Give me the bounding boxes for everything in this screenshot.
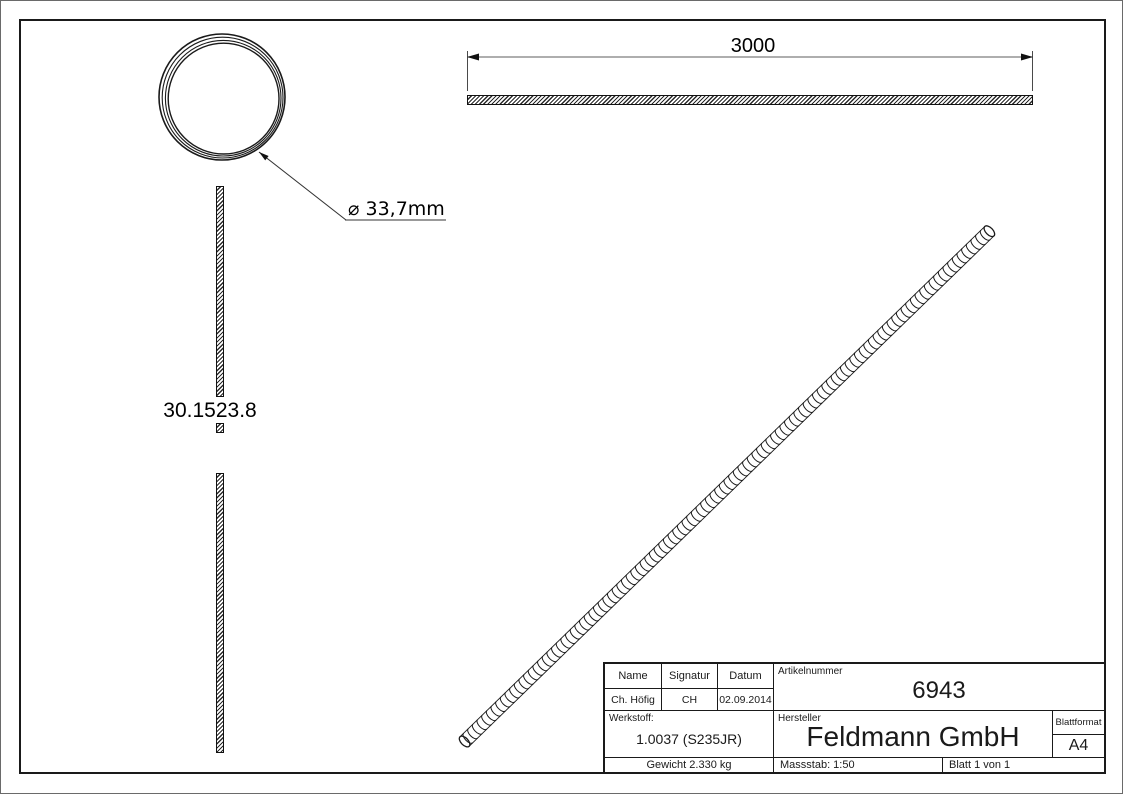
title-block-name-value: Ch. Höfig [605,689,662,711]
technical-drawing-page: { "colors": { "line": "#1a1a1a", "dimens… [0,0,1123,794]
dim-arrow-left-icon [467,54,479,61]
dim-arrow-right-icon [1021,54,1033,61]
cross-section-view [159,34,285,160]
material-value: 1.0037 (S235JR) [636,731,742,747]
title-block-date-header: Datum [718,664,774,689]
article-number-label: 30.1523.8 [160,399,260,423]
article-number-header: Artikelnummer [778,666,842,677]
front-view-bar-upper [216,186,224,397]
title-block: Name Signatur Datum Artikelnummer 6943 C… [603,662,1106,774]
title-block-sheet-format-value-cell: A4 [1053,735,1104,758]
manufacturer-value: Feldmann GmbH [806,721,1019,753]
title-block-manufacturer-cell: Hersteller Feldmann GmbH [774,711,1053,758]
title-block-sheet-cell: Blatt 1 von 1 [943,758,1104,772]
diameter-label: ⌀ 33,7mm [348,198,445,220]
title-block-signature-value: CH [662,689,718,711]
front-view-bar-middle [216,423,224,433]
title-block-sheet-format-label-cell: Blattformat [1053,711,1104,735]
title-block-name-header: Name [605,664,662,689]
manufacturer-label: Hersteller [778,713,821,724]
title-block-scale-cell: Massstab: 1:50 [774,758,943,772]
article-number-value: 6943 [912,677,965,705]
material-label: Werkstoff: [609,713,654,724]
title-block-date-value: 02.09.2014 [718,689,774,711]
title-block-weight-cell: Gewicht 2.330 kg [605,758,774,772]
length-dim-label: 3000 [713,35,793,58]
leader-arrowhead-icon [259,152,269,160]
title-block-signature-header: Signatur [662,664,718,689]
front-view-bar-lower [216,473,224,753]
title-block-article-cell: Artikelnummer 6943 [774,664,1104,711]
side-view-bar [467,95,1033,105]
title-block-material-cell: Werkstoff: 1.0037 (S235JR) [605,711,774,758]
